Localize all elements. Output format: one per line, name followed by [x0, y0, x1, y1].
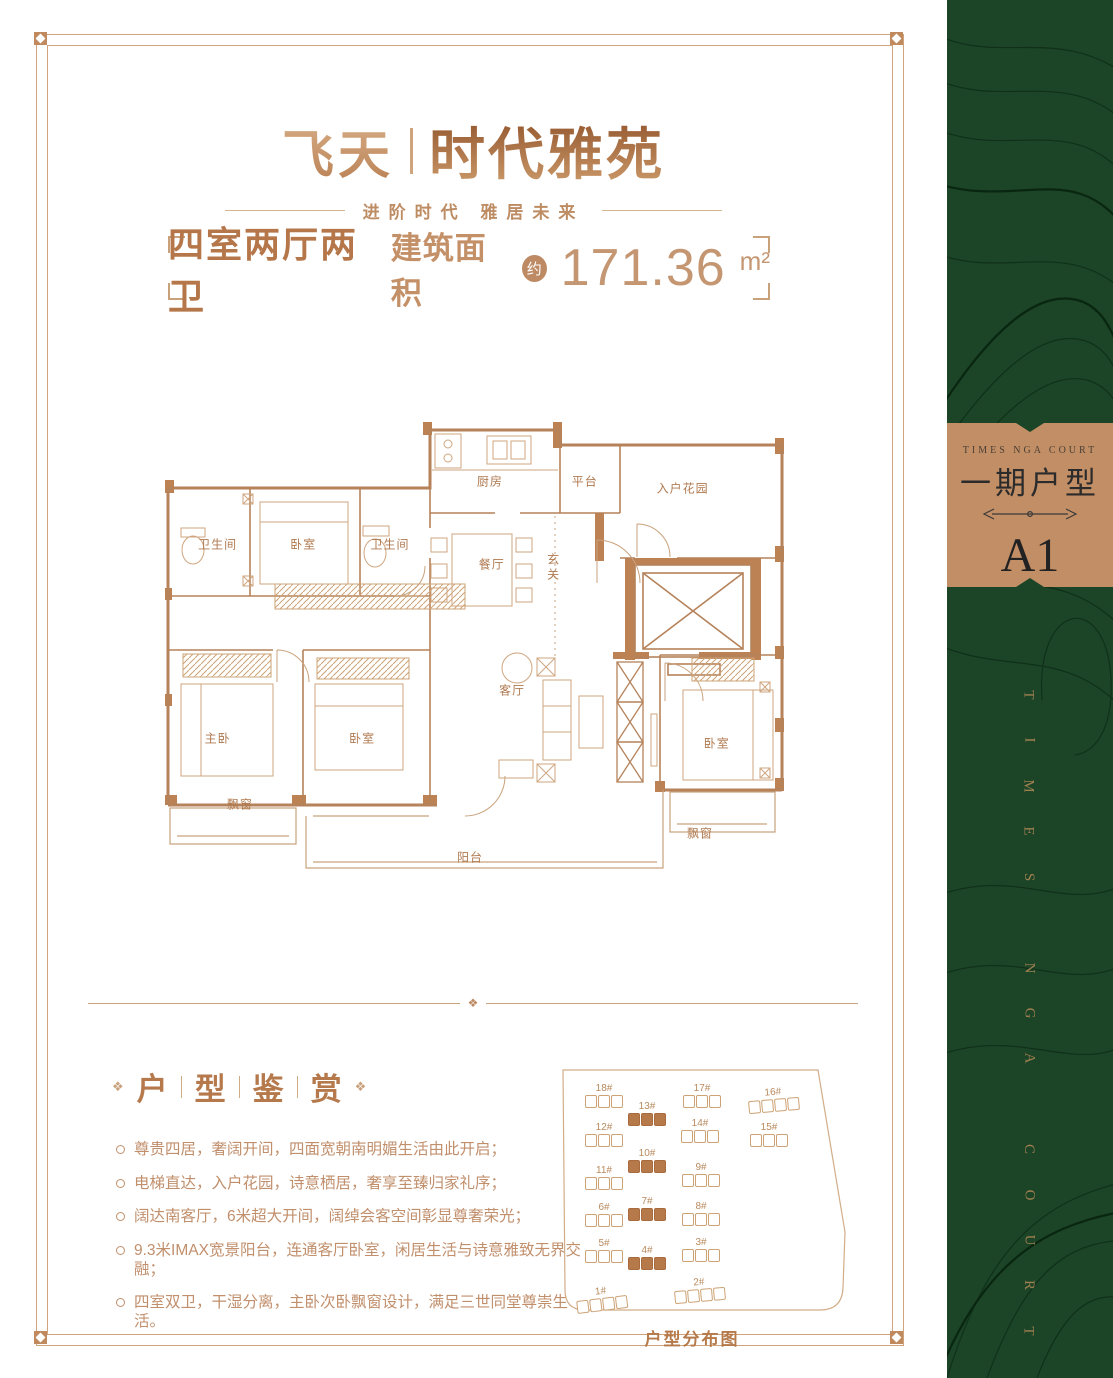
siteplan-caption: 户型分布图	[552, 1325, 832, 1350]
vertical-letter: E	[1023, 827, 1037, 836]
heading-separator	[297, 1076, 298, 1098]
building-5: 5#	[585, 1238, 623, 1263]
building-10-highlighted: 10#	[628, 1148, 666, 1173]
building-14: 14#	[681, 1118, 719, 1143]
building-15: 15#	[750, 1122, 788, 1147]
heading-char: 鉴	[253, 1064, 284, 1109]
heading-separator	[239, 1076, 240, 1098]
building-4-highlighted: 4#	[628, 1245, 666, 1270]
building-8: 8#	[682, 1201, 720, 1226]
room-label-bedroom-3: 卧室	[704, 734, 730, 751]
room-label-entry-garden: 入户花园	[657, 480, 709, 497]
bullet-icon	[116, 1212, 125, 1221]
room-label-bedroom-2: 卧室	[349, 730, 375, 747]
features-list: 尊贵四居，奢阔开间，四面宽朝南明媚生活由此开启； 电梯直达，入户花园，诗意栖居，…	[116, 1140, 596, 1346]
vertical-letter: I	[1023, 738, 1037, 743]
area-label: 建筑面积	[391, 223, 508, 313]
heading-char: 赏	[311, 1064, 342, 1109]
room-label-foyer: 玄关	[545, 553, 562, 583]
vertical-letter: C	[1023, 1144, 1037, 1154]
feature-text: 阔达南客厅，6米超大开间，阔绰会客空间彰显尊奢荣光；	[134, 1207, 530, 1226]
frame-corner-ornament	[34, 32, 47, 45]
badge-unit-code: A1	[947, 528, 1113, 583]
unit-spec-title: 四室两厅两卫 建筑面积 约 171.36 m²	[168, 236, 770, 300]
vertical-letter: R	[1023, 1280, 1037, 1290]
siteplan: 18# 13# 17# 16# 12# 14# 15# 10# 11# 9# 6…	[552, 1062, 867, 1352]
divider-line-left	[88, 1003, 460, 1004]
feature-item: 电梯直达，入户花园，诗意栖居，奢享至臻归家礼序；	[116, 1174, 596, 1193]
frame-corner-ornament	[890, 1331, 903, 1344]
divider-line-right	[486, 1003, 858, 1004]
heading-separator	[181, 1076, 182, 1098]
badge-arrow-ornament	[947, 507, 1113, 526]
feature-text: 尊贵四居，奢阔开间，四面宽朝南明媚生活由此开启；	[134, 1140, 506, 1159]
section-divider: ❖	[88, 996, 858, 1010]
room-label-dining: 餐厅	[479, 555, 505, 572]
bullet-icon	[116, 1179, 125, 1188]
heading-ornament-right: ❖	[355, 1079, 367, 1095]
brand-tagline-row: 进阶时代 雅居未来	[0, 198, 947, 223]
heading-ornament-left: ❖	[112, 1079, 124, 1095]
feature-item: 阔达南客厅，6米超大开间，阔绰会客空间彰显尊奢荣光；	[116, 1207, 596, 1226]
building-3: 3#	[682, 1237, 720, 1262]
sidebar-vertical-text: T I M E S N G A C O U R T	[947, 688, 1113, 1338]
bullet-icon	[116, 1145, 125, 1154]
room-label-bay-window-right: 飘窗	[687, 824, 713, 841]
vertical-letter: T	[1023, 1326, 1037, 1335]
feature-text: 9.3米IMAX宽景阳台，连通客厅卧室，闲居生活与诗意雅致无界交融；	[134, 1241, 596, 1279]
brand-logo-left: 飞天	[282, 113, 394, 188]
brand-tagline: 进阶时代 雅居未来	[363, 198, 585, 223]
building-9: 9#	[682, 1162, 720, 1187]
badge-phase-label: 一期户型	[947, 458, 1113, 503]
vertical-letter: U	[1023, 1235, 1037, 1246]
building-7-highlighted: 7#	[628, 1196, 666, 1221]
features-heading: ❖ 户 型 鉴 赏 ❖	[112, 1064, 366, 1109]
bullet-icon	[116, 1298, 125, 1307]
tagline-line-right	[602, 210, 722, 211]
vertical-letter: A	[1023, 1053, 1037, 1064]
vertical-letter: T	[1023, 690, 1037, 699]
brand-logo-divider	[410, 128, 413, 174]
poster-page: 飞天 时代雅苑 进阶时代 雅居未来 四室两厅两卫 建筑面积 约 171.36 m…	[0, 0, 1113, 1378]
building-6: 6#	[585, 1202, 623, 1227]
vertical-letter: O	[1023, 1189, 1037, 1200]
room-label-master-bedroom: 主卧	[205, 730, 231, 747]
heading-char: 户	[137, 1064, 168, 1109]
feature-text: 四室双卫，干湿分离，主卧次卧飘窗设计，满足三世同堂尊崇生活。	[134, 1293, 596, 1331]
vertical-letter: S	[1023, 873, 1037, 881]
feature-item: 9.3米IMAX宽景阳台，连通客厅卧室，闲居生活与诗意雅致无界交融；	[116, 1241, 596, 1279]
building-12: 12#	[585, 1122, 623, 1147]
room-label-platform: 平台	[572, 473, 598, 490]
tagline-line-left	[225, 210, 345, 211]
vertical-letter: N	[1023, 962, 1037, 973]
approx-badge: 约	[522, 255, 547, 282]
building-11: 11#	[585, 1165, 623, 1190]
room-label-bedroom-1: 卧室	[290, 536, 316, 553]
brand-logo-right: 时代雅苑	[429, 110, 665, 191]
room-label-kitchen: 厨房	[477, 473, 503, 490]
area-value: 171.36	[561, 238, 726, 298]
building-17: 17#	[683, 1083, 721, 1108]
vertical-letter: M	[1023, 779, 1037, 792]
rooms-count-label: 四室两厅两卫	[168, 216, 377, 320]
room-label-balcony: 阳台	[457, 848, 483, 865]
feature-text: 电梯直达，入户花园，诗意栖居，奢享至臻归家礼序；	[134, 1174, 506, 1193]
heading-char: 型	[195, 1064, 226, 1109]
room-label-bathroom-1: 卫生间	[198, 536, 237, 553]
building-18: 18#	[585, 1083, 623, 1108]
building-13-highlighted: 13#	[628, 1101, 666, 1126]
room-label-bathroom-2: 卫生间	[371, 536, 410, 553]
bullet-icon	[116, 1246, 125, 1255]
badge-project-name-en: TIMES NGA COURT	[947, 445, 1113, 456]
brand-logo: 飞天 时代雅苑	[0, 110, 947, 191]
frame-corner-ornament	[34, 1331, 47, 1344]
frame-corner-ornament	[890, 32, 903, 45]
room-label-bay-window-left: 飘窗	[227, 795, 253, 812]
vertical-letter: G	[1023, 1008, 1037, 1019]
feature-item: 尊贵四居，奢阔开间，四面宽朝南明媚生活由此开启；	[116, 1140, 596, 1159]
area-unit: m²	[740, 246, 770, 277]
building-16: 16#	[747, 1085, 800, 1114]
building-2: 2#	[673, 1275, 726, 1304]
feature-item: 四室双卫，干湿分离，主卧次卧飘窗设计，满足三世同堂尊崇生活。	[116, 1293, 596, 1331]
room-label-living-room: 客厅	[499, 681, 525, 698]
unit-badge: TIMES NGA COURT 一期户型 A1	[947, 423, 1113, 587]
floorplan: 卫生间 卧室 卫生间 厨房 平台 入户花园 餐厅 玄关 主卧 卧室 客厅 卧室 …	[165, 418, 785, 903]
divider-ornament: ❖	[468, 997, 479, 1009]
